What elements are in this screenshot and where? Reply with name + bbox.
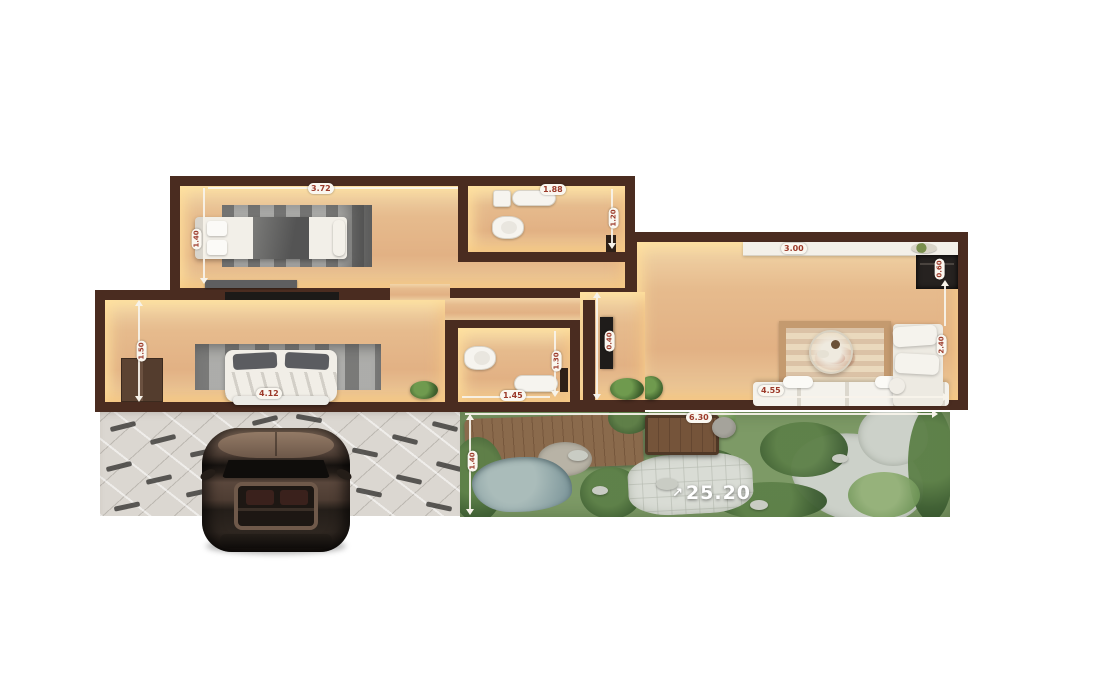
pavement-dash [110, 421, 136, 432]
pillow [285, 352, 330, 370]
garden-stool [712, 417, 736, 438]
armchair [892, 324, 937, 347]
coffee-table [809, 330, 853, 374]
dim-label-sofa-side: 2.40 [937, 334, 947, 355]
garden-stone [592, 486, 608, 495]
arrow-icon [135, 300, 143, 306]
bathroom1: 1.20 1.88 [458, 176, 635, 262]
pavement-dash [436, 461, 462, 472]
pavement-dash [392, 434, 418, 445]
dim-label-garden-side: 1.40 [468, 450, 478, 471]
bed-bench [233, 396, 329, 405]
living-room: 0.60 3.00 2.40 4.55 [627, 232, 968, 410]
garden-area-value: 25.20 [686, 482, 751, 504]
arrow-icon [941, 280, 949, 286]
arrow-icon [551, 391, 559, 397]
pillow [233, 352, 278, 370]
car-bumper [220, 534, 332, 548]
pillow [207, 240, 227, 255]
pond [472, 457, 572, 512]
dim-line-bedroom1-left [203, 188, 205, 282]
arrow-icon [932, 412, 938, 418]
arrow-icon [608, 243, 616, 249]
garden-stone [832, 454, 848, 463]
dim-label-sofa-width: 4.55 [758, 385, 784, 396]
garden-stone [568, 450, 588, 461]
pavement-dash [396, 474, 422, 485]
pavement-dash [426, 501, 452, 511]
garden-stone [750, 500, 768, 510]
dim-label-living-counter: 3.00 [781, 243, 807, 254]
car-cabin-divider [238, 508, 314, 511]
dim-label-bathroom2-width: 1.45 [500, 390, 526, 401]
armchair [895, 353, 940, 375]
door-opening [390, 284, 450, 300]
dim-label-garden-deck: 6.30 [686, 412, 712, 423]
bedroom1-bed [195, 217, 347, 259]
bathroom1-toilet [492, 216, 524, 239]
car-mirror [199, 468, 217, 482]
dim-label-bathroom1-width: 1.88 [540, 184, 566, 195]
bathroom1-sink [493, 190, 511, 207]
arrow-icon [943, 393, 949, 401]
car [202, 428, 350, 556]
dim-label-hall-tv: 0.40 [605, 330, 615, 351]
car-seat [246, 490, 274, 505]
pavement-dash [296, 414, 322, 423]
blanket [253, 217, 309, 259]
bathroom2: 1.30 1.45 [448, 318, 580, 412]
arrow-icon [200, 278, 208, 284]
pavement-dash [114, 501, 140, 511]
pavement-dash [352, 447, 378, 457]
dim-label-bedroom2-width: 4.12 [256, 388, 282, 399]
bedroom2-plant [410, 381, 438, 399]
pavement-dash [106, 461, 132, 472]
foliage [848, 472, 920, 517]
arrow-icon [135, 396, 143, 402]
hallway-plant [610, 378, 644, 400]
dim-label-bedroom2-side: 1.50 [137, 340, 147, 361]
pavement-dash [252, 415, 278, 426]
garden-area-label: ↗ 25.20 [672, 482, 751, 504]
foliage [760, 422, 848, 477]
car-cabin-window [234, 482, 318, 530]
pavement-dash [356, 487, 382, 497]
arrow-icon [466, 509, 474, 515]
car-windshield [222, 460, 330, 478]
bathroom2-door [560, 368, 568, 392]
arrow-icon [593, 292, 601, 298]
arrow-icon [593, 394, 601, 400]
bathroom2-toilet [464, 346, 496, 370]
pavement-dash [150, 434, 176, 445]
dim-label-bedroom1-side: 1.40 [192, 228, 202, 249]
sofa-pillow [783, 376, 813, 388]
dim-line-living-right [944, 284, 946, 326]
tv-panel [225, 292, 339, 300]
dim-label-bathroom1-side: 1.20 [609, 207, 619, 228]
bedroom2: 4.12 1.50 [95, 290, 455, 412]
side-table [889, 378, 905, 394]
food-plate [911, 243, 937, 253]
dim-line-bedroom1-top [208, 187, 470, 189]
pavement-dash [432, 421, 458, 432]
hallway: 0.40 [580, 292, 645, 400]
car-body [202, 428, 350, 552]
floor-plan-canvas: 6.30 1.40 ↗ 25.20 1.40 3.72 [0, 0, 1096, 693]
dim-label-bedroom1-width: 3.72 [308, 183, 334, 194]
dim-label-living-unit: 0.60 [935, 258, 945, 279]
table-bowl [831, 340, 840, 349]
pavement-dash [146, 474, 172, 485]
table-plate [817, 350, 829, 358]
arrow-icon [466, 414, 474, 420]
diagonal-arrow-icon: ↗ [672, 486, 684, 501]
garden: 6.30 1.40 ↗ 25.20 [460, 412, 950, 517]
toilet-lid [501, 221, 517, 234]
dim-line-sofa [755, 396, 945, 398]
pillow [207, 221, 227, 236]
dim-line-hallway [596, 294, 598, 398]
hallway-wall [583, 300, 595, 400]
car-seat [280, 490, 308, 505]
bedroom1-dresser [205, 280, 297, 288]
toilet-lid [474, 351, 490, 365]
car-roof-seam [275, 432, 277, 456]
dim-label-bathroom2-side: 1.30 [552, 350, 562, 371]
foot-roll [333, 220, 345, 256]
